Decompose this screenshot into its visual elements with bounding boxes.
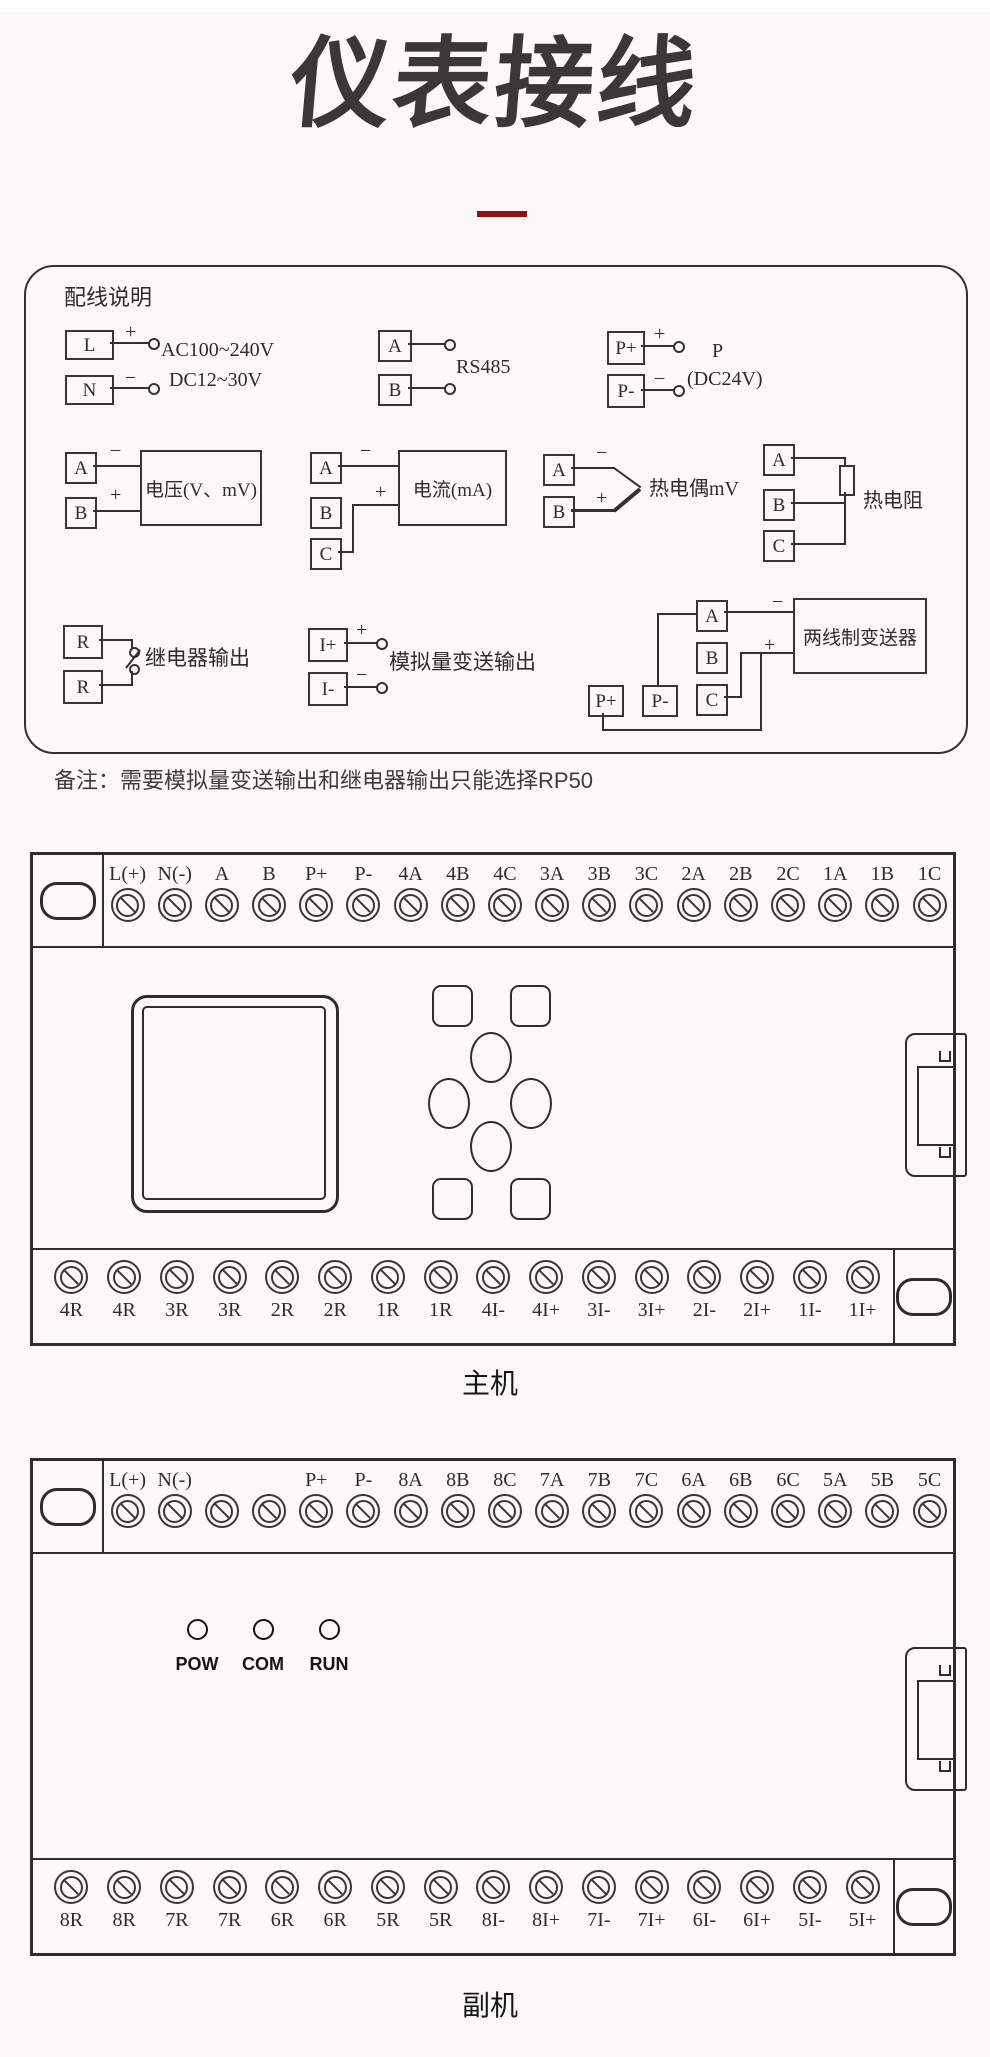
terminal: 3A	[529, 861, 576, 922]
terminal: L(+)	[104, 861, 151, 922]
terminal-label: 6A	[681, 1467, 705, 1493]
terminal: 1I-	[784, 1259, 837, 1324]
wire	[352, 505, 354, 553]
terminal: 8C	[481, 1467, 528, 1528]
terminal: 5R	[362, 1869, 415, 1934]
polarity-plus: +	[596, 488, 607, 508]
terminal: 3R	[151, 1259, 204, 1324]
terminal-label: 5R	[376, 1904, 399, 1934]
terminal-label: L(+)	[109, 861, 146, 887]
terminal: 3C	[623, 861, 670, 922]
terminal: A	[198, 861, 245, 922]
wire-node-icon	[444, 383, 456, 395]
screw-terminal-icon	[535, 888, 569, 922]
terminal: 2R	[309, 1259, 362, 1324]
terminal: 2B	[717, 861, 764, 922]
terminal-box-A: A	[543, 454, 575, 486]
screw-terminal-icon	[535, 1494, 569, 1528]
screw-terminal-icon	[677, 888, 711, 922]
terminal-label: 8R	[60, 1904, 83, 1934]
wire-node-icon	[148, 383, 160, 395]
screw-terminal-icon	[54, 1260, 88, 1294]
terminal-label: 8B	[446, 1467, 469, 1493]
screw-terminal-icon	[529, 1870, 563, 1904]
aux-bottom-terminal-strip: 8R 8R 7R 7R	[33, 1858, 953, 1953]
terminal-label: 3I+	[638, 1294, 666, 1324]
keypad-button-top-left	[432, 985, 473, 1027]
power-spec: (DC24V)	[687, 368, 763, 391]
terminal: 4R	[98, 1259, 151, 1324]
screw-terminal-icon	[846, 1870, 880, 1904]
terminal: P+	[293, 861, 340, 922]
led-label: RUN	[310, 1654, 349, 1675]
terminal-box-A: A	[763, 444, 795, 476]
terminal-label: 5R	[429, 1904, 452, 1934]
terminal-label: 8I-	[482, 1904, 505, 1934]
connector-notch	[939, 1147, 951, 1158]
terminal-label: 6B	[729, 1467, 752, 1493]
polarity-plus: +	[110, 485, 121, 505]
led-label: POW	[176, 1654, 219, 1675]
wire-node-icon	[148, 338, 160, 350]
terminal-label: 1B	[871, 861, 894, 887]
screw-terminal-icon	[582, 1494, 616, 1528]
screw-terminal-icon	[252, 1494, 286, 1528]
terminal-label: 5A	[823, 1467, 847, 1493]
terminal: 7I-	[573, 1869, 626, 1934]
screw-terminal-icon	[107, 1870, 141, 1904]
terminal: 1I+	[836, 1259, 889, 1324]
terminal: 4R	[45, 1259, 98, 1324]
polarity-minus: −	[654, 369, 665, 389]
terminal-label: N(-)	[158, 1467, 192, 1493]
screw-terminal-icon	[111, 1494, 145, 1528]
terminal: 4C	[481, 861, 528, 922]
terminal: 5I-	[784, 1869, 837, 1934]
terminal-label: 4I-	[482, 1294, 505, 1324]
polarity-minus: −	[360, 441, 371, 461]
voltage-device-box: 电压(V、mV)	[140, 450, 262, 526]
terminal-label: 7R	[165, 1904, 188, 1934]
wire	[344, 686, 378, 688]
polarity-minus: −	[125, 368, 136, 388]
terminal: 4A	[387, 861, 434, 922]
terminal: 5R	[414, 1869, 467, 1934]
mounting-slot-icon	[896, 1888, 952, 1926]
terminal: 8I+	[520, 1869, 573, 1934]
screw-terminal-icon	[205, 888, 239, 922]
polarity-minus: −	[772, 592, 783, 612]
terminal: 8A	[387, 1467, 434, 1528]
terminal-box-B: B	[310, 497, 342, 529]
main-bottom-terminals: 4R 4R 3R 3R	[33, 1250, 893, 1343]
terminal-label: 5C	[918, 1467, 941, 1493]
terminal: 8R	[45, 1869, 98, 1934]
screw-terminal-icon	[394, 888, 428, 922]
aux-unit-caption: 副机	[30, 1984, 950, 2024]
wire-node-icon	[673, 385, 685, 397]
side-connector-slot	[917, 1680, 955, 1760]
terminal: N(-)	[151, 861, 198, 922]
terminal-label: 2C	[776, 861, 799, 887]
wiring-page: 仪表接线 配线说明 L N + − AC100~240V DC12~30V A …	[0, 0, 990, 2057]
led-label: COM	[242, 1654, 284, 1675]
screw-terminal-icon	[724, 888, 758, 922]
terminal-label: N(-)	[158, 861, 192, 887]
terminal: 8R	[98, 1869, 151, 1934]
terminal-label: 3R	[165, 1294, 188, 1324]
screw-terminal-icon	[740, 1260, 774, 1294]
power-name: P	[712, 340, 723, 363]
screw-terminal-icon	[111, 888, 145, 922]
terminal-label: 1R	[376, 1294, 399, 1324]
screw-terminal-icon	[299, 1494, 333, 1528]
screw-terminal-icon	[771, 1494, 805, 1528]
main-top-terminals: L(+) N(-) A B	[104, 855, 953, 946]
terminal: P-	[340, 1467, 387, 1528]
wire	[99, 639, 133, 641]
led-dot-icon	[187, 1619, 208, 1640]
board-end-cell	[893, 1860, 953, 1953]
terminal: P+	[293, 1467, 340, 1528]
screw-terminal-icon	[476, 1260, 510, 1294]
terminal-box-B: B	[378, 374, 412, 406]
screw-terminal-icon	[724, 1494, 758, 1528]
terminal: 6R	[309, 1869, 362, 1934]
led-dot-icon	[253, 1619, 274, 1640]
wire	[791, 502, 846, 504]
terminal-label: 3C	[635, 861, 658, 887]
terminal-label: 2A	[681, 861, 705, 887]
terminal: 1C	[906, 861, 953, 922]
terminal: 7R	[151, 1869, 204, 1934]
screw-terminal-icon	[299, 888, 333, 922]
aux-unit-board: L(+) N(-)	[30, 1458, 956, 1956]
wire	[408, 343, 446, 345]
screw-terminal-icon	[582, 888, 616, 922]
terminal-label: 7I+	[638, 1904, 666, 1934]
wire	[791, 457, 846, 459]
terminal-label: 4R	[112, 1294, 135, 1324]
terminal: 1R	[414, 1259, 467, 1324]
terminal-box-A: A	[696, 600, 728, 632]
screw-terminal-icon	[476, 1870, 510, 1904]
screw-terminal-icon	[635, 1260, 669, 1294]
keypad-left-button	[428, 1078, 470, 1129]
wire	[791, 543, 846, 545]
screw-terminal-icon	[441, 888, 475, 922]
terminal: 2I+	[731, 1259, 784, 1324]
screw-terminal-icon	[160, 1870, 194, 1904]
screw-terminal-icon	[205, 1494, 239, 1528]
screw-terminal-icon	[265, 1870, 299, 1904]
terminal-label: 4B	[446, 861, 469, 887]
terminal-box-R1: R	[63, 625, 103, 659]
terminal-label: 7R	[218, 1904, 241, 1934]
terminal: 7I+	[625, 1869, 678, 1934]
voltage-range-ac: AC100~240V	[161, 339, 274, 362]
screw-terminal-icon	[629, 1494, 663, 1528]
terminal-box-B: B	[65, 497, 97, 529]
terminal-label: 5B	[871, 1467, 894, 1493]
terminal: 8I-	[467, 1869, 520, 1934]
led-dot-icon	[319, 1619, 340, 1640]
terminal: 4I+	[520, 1259, 573, 1324]
terminal-label: P-	[355, 1467, 373, 1493]
screw-terminal-icon	[160, 1260, 194, 1294]
wire	[760, 653, 762, 731]
terminal-label: L(+)	[109, 1467, 146, 1493]
terminal-label: P-	[355, 861, 373, 887]
terminal-label: 6R	[323, 1904, 346, 1934]
terminal-label: 1A	[823, 861, 847, 887]
terminal-box-B: B	[543, 496, 575, 528]
status-led-row: POW COM RUN	[173, 1619, 353, 1675]
screw-terminal-icon	[394, 1494, 428, 1528]
screw-terminal-icon	[371, 1870, 405, 1904]
main-top-terminal-strip: L(+) N(-) A B	[33, 855, 953, 948]
polarity-minus: −	[356, 665, 367, 685]
screw-terminal-icon	[318, 1260, 352, 1294]
terminal-label: 6I-	[693, 1904, 716, 1934]
led-indicator: RUN	[305, 1619, 353, 1675]
screw-terminal-icon	[865, 1494, 899, 1528]
connector-notch	[939, 1665, 951, 1676]
thermocouple-label: 热电偶mV	[649, 478, 739, 501]
terminal-box-R2: R	[63, 670, 103, 704]
terminal: 5C	[906, 1467, 953, 1528]
screw-terminal-icon	[913, 888, 947, 922]
wire	[93, 510, 140, 512]
screw-terminal-icon	[107, 1260, 141, 1294]
terminal-label: 1I-	[798, 1294, 821, 1324]
terminal: 6I-	[678, 1869, 731, 1934]
screw-terminal-icon	[687, 1260, 721, 1294]
terminal-label: 2R	[323, 1294, 346, 1324]
terminal-label: 8I+	[532, 1904, 560, 1934]
terminal-label: 1R	[429, 1294, 452, 1324]
terminal-label: 8C	[493, 1467, 516, 1493]
terminal-label: A	[215, 861, 229, 887]
screw-terminal-icon	[346, 888, 380, 922]
red-divider	[477, 211, 527, 217]
wire	[740, 653, 742, 698]
polarity-minus: −	[110, 441, 121, 461]
terminal: 2A	[670, 861, 717, 922]
polarity-plus: +	[654, 324, 665, 344]
aux-top-terminal-strip: L(+) N(-)	[33, 1461, 953, 1554]
board-end-cell	[33, 855, 104, 946]
wire	[657, 613, 659, 685]
wire-node-icon	[376, 682, 388, 694]
terminal: 6A	[670, 1467, 717, 1528]
screw-terminal-icon	[488, 1494, 522, 1528]
terminal: P-	[340, 861, 387, 922]
terminal: 4I-	[467, 1259, 520, 1324]
terminal-label: 8R	[112, 1904, 135, 1934]
terminal-box-I-minus: I-	[308, 672, 348, 706]
terminal-label: 5I+	[849, 1904, 877, 1934]
terminal-label: 2I-	[693, 1294, 716, 1324]
terminal: 5A	[812, 1467, 859, 1528]
wire	[352, 504, 398, 506]
terminal-label: 3B	[588, 861, 611, 887]
terminal-label: 1I+	[849, 1294, 877, 1324]
terminal: 2R	[256, 1259, 309, 1324]
terminal-label: 1C	[918, 861, 941, 887]
terminal-label: 5I-	[798, 1904, 821, 1934]
terminal-box-P-minus: P-	[607, 374, 645, 408]
terminal-label: 2R	[271, 1294, 294, 1324]
transmitter-device-box: 两线制变送器	[793, 598, 927, 674]
terminal: 2I-	[678, 1259, 731, 1324]
screw-terminal-icon	[582, 1870, 616, 1904]
terminal-box-N: N	[65, 375, 114, 405]
keypad-button-bottom-right	[510, 1178, 551, 1220]
terminal-label: 3R	[218, 1294, 241, 1324]
wire	[93, 465, 140, 467]
screw-terminal-icon	[265, 1260, 299, 1294]
screw-terminal-icon	[865, 888, 899, 922]
screw-terminal-icon	[635, 1870, 669, 1904]
terminal: L(+)	[104, 1467, 151, 1528]
terminal-box-P-plus: P+	[607, 331, 645, 365]
wire	[641, 345, 675, 347]
terminal-label: 2B	[729, 861, 752, 887]
wire	[844, 492, 846, 544]
screw-terminal-icon	[424, 1870, 458, 1904]
polarity-plus: +	[356, 620, 367, 640]
polarity-minus: −	[596, 443, 607, 463]
wiring-box-heading: 配线说明	[64, 280, 152, 312]
side-connector-slot	[917, 1066, 955, 1146]
rtd-label: 热电阻	[863, 490, 923, 513]
terminal: 3B	[576, 861, 623, 922]
polarity-plus: +	[125, 322, 136, 342]
terminal-box-A: A	[378, 330, 412, 362]
screw-terminal-icon	[213, 1870, 247, 1904]
screw-terminal-icon	[818, 888, 852, 922]
terminal-label: 7I-	[587, 1904, 610, 1934]
relay-label: 继电器输出	[145, 646, 250, 670]
terminal-box-C: C	[763, 530, 795, 562]
led-indicator: COM	[239, 1619, 287, 1675]
wire-node-icon	[673, 341, 685, 353]
terminal	[198, 1467, 245, 1528]
mounting-slot-icon	[40, 1488, 96, 1526]
terminal: 6C	[764, 1467, 811, 1528]
terminal: B	[246, 861, 293, 922]
terminal-label: 8A	[398, 1467, 422, 1493]
terminal-label: 2I+	[743, 1294, 771, 1324]
board-end-cell	[893, 1250, 953, 1343]
screw-terminal-icon	[424, 1260, 458, 1294]
main-unit-caption: 主机	[30, 1362, 950, 1402]
mounting-slot-icon	[40, 882, 96, 920]
connector-notch	[939, 1051, 951, 1062]
screw-terminal-icon	[793, 1870, 827, 1904]
screw-terminal-icon	[252, 888, 286, 922]
screw-terminal-icon	[793, 1260, 827, 1294]
screw-terminal-icon	[629, 888, 663, 922]
screw-terminal-icon	[158, 888, 192, 922]
polarity-plus: +	[764, 635, 775, 655]
screw-terminal-icon	[441, 1494, 475, 1528]
wire	[338, 465, 398, 467]
main-bottom-terminal-strip: 4R 4R 3R 3R	[33, 1248, 953, 1343]
screw-terminal-icon	[213, 1260, 247, 1294]
screw-terminal-icon	[346, 1494, 380, 1528]
aux-top-terminals: L(+) N(-)	[104, 1461, 953, 1552]
terminal-box-P-plus: P+	[588, 685, 624, 717]
terminal-label: 4I+	[532, 1294, 560, 1324]
terminal-label: 7C	[635, 1467, 658, 1493]
wire	[602, 729, 762, 731]
terminal: 7C	[623, 1467, 670, 1528]
wire	[408, 387, 446, 389]
terminal-label: 3I-	[587, 1294, 610, 1324]
terminal-label: 7A	[540, 1467, 564, 1493]
terminal: 1R	[362, 1259, 415, 1324]
wire	[99, 684, 133, 686]
screw-terminal-icon	[488, 888, 522, 922]
aux-bottom-terminals: 8R 8R 7R 7R	[33, 1860, 893, 1953]
terminal: 7R	[203, 1869, 256, 1934]
keypad-up-button	[470, 1032, 512, 1083]
polarity-plus: +	[375, 482, 386, 502]
terminal: 6R	[256, 1869, 309, 1934]
screw-terminal-icon	[582, 1260, 616, 1294]
screw-terminal-icon	[818, 1494, 852, 1528]
terminal-box-P-minus: P-	[642, 685, 678, 717]
terminal-box-L: L	[65, 330, 114, 360]
terminal: 7A	[529, 1467, 576, 1528]
screw-terminal-icon	[771, 888, 805, 922]
terminal-label: 4C	[493, 861, 516, 887]
terminal-label: 4R	[60, 1294, 83, 1324]
keypad-button-top-right	[510, 985, 551, 1027]
note-line: 备注：需要模拟量变送输出和继电器输出只能选择RP50	[54, 763, 593, 795]
wire	[657, 613, 696, 615]
terminal-box-B: B	[763, 489, 795, 521]
top-white-bar	[0, 0, 990, 12]
screw-terminal-icon	[846, 1260, 880, 1294]
wire	[571, 467, 615, 469]
terminal: 5B	[859, 1467, 906, 1528]
terminal-label: 6C	[776, 1467, 799, 1493]
current-device-box: 电流(mA)	[398, 450, 507, 526]
terminal-box-C: C	[310, 538, 342, 570]
voltage-range-dc: DC12~30V	[169, 369, 262, 392]
terminal-box-A: A	[65, 452, 97, 484]
wire	[344, 642, 378, 644]
terminal-box-C: C	[696, 684, 728, 716]
terminal: 4B	[434, 861, 481, 922]
screw-terminal-icon	[677, 1494, 711, 1528]
resistor-icon	[839, 465, 855, 496]
terminal: 6B	[717, 1467, 764, 1528]
terminal-label: B	[262, 861, 275, 887]
keypad-right-button	[510, 1078, 552, 1129]
terminal-label: 6I+	[743, 1904, 771, 1934]
screw-terminal-icon	[687, 1870, 721, 1904]
screw-terminal-icon	[371, 1260, 405, 1294]
lcd-display-screen	[142, 1006, 326, 1200]
main-unit-board: L(+) N(-) A B	[30, 852, 956, 1346]
wire-node-icon	[444, 339, 456, 351]
screw-terminal-icon	[740, 1870, 774, 1904]
terminal-box-A: A	[310, 452, 342, 484]
